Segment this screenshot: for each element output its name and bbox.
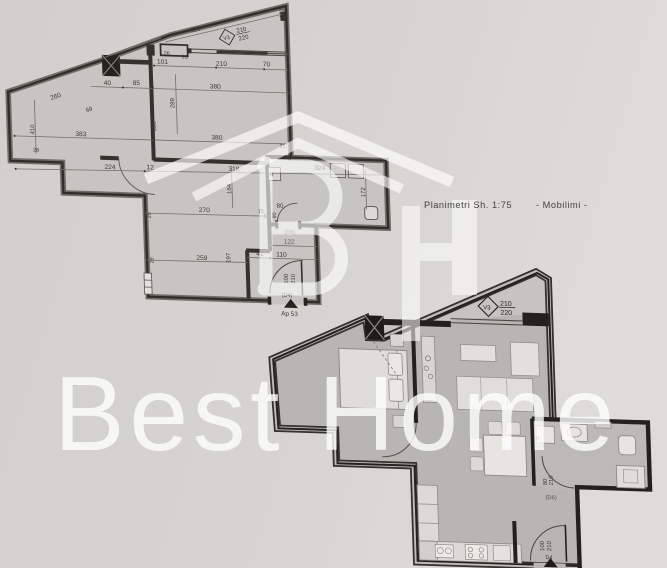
svg-text:(D6): (D6) [545,495,557,501]
svg-text:40: 40 [104,80,112,87]
svg-text:100: 100 [540,540,546,551]
svg-text:110: 110 [276,251,287,258]
svg-text:197: 197 [226,252,232,263]
svg-text:90: 90 [272,212,278,218]
svg-text:220: 220 [500,310,512,317]
svg-text:28: 28 [33,147,39,153]
svg-text:383: 383 [75,131,87,138]
svg-text:Best Home: Best Home [54,355,619,473]
svg-text:- Mobilimi -: - Mobilimi - [536,200,587,210]
svg-text:100: 100 [284,273,290,284]
svg-text:101: 101 [157,59,169,66]
svg-text:270: 270 [199,207,211,214]
svg-text:224: 224 [104,164,116,171]
svg-text:80: 80 [277,202,285,209]
svg-text:656: 656 [152,121,158,132]
svg-text:70: 70 [263,61,271,68]
svg-text:122: 122 [284,239,296,246]
svg-text:210: 210 [216,61,228,68]
svg-text:29: 29 [149,257,155,263]
svg-text:210: 210 [547,540,553,551]
svg-text:172: 172 [361,187,367,198]
svg-text:410: 410 [30,124,36,135]
svg-text:Planimetri Sh. 1:75: Planimetri Sh. 1:75 [424,200,512,210]
svg-text:29: 29 [147,212,153,218]
svg-text:85: 85 [133,80,141,87]
svg-text:259: 259 [196,255,208,262]
svg-text:380: 380 [210,83,222,90]
svg-text:380: 380 [211,134,223,141]
svg-text:210: 210 [549,476,555,486]
svg-text:162: 162 [279,9,285,18]
svg-text:210: 210 [291,273,297,284]
svg-text:289: 289 [170,97,176,108]
svg-text:26: 26 [182,55,188,61]
svg-text:V3: V3 [483,305,491,311]
svg-text:Ap 53: Ap 53 [281,311,298,319]
svg-text:26: 26 [164,51,170,57]
